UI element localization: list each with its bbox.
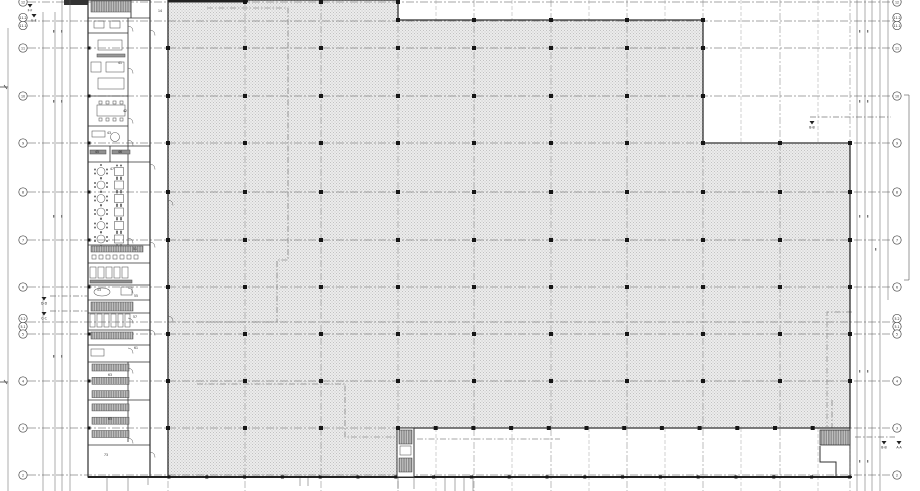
grid-bubble: 3 bbox=[893, 424, 901, 432]
grid-bubble: 11 bbox=[19, 44, 27, 52]
svg-text:11.1: 11.1 bbox=[893, 24, 900, 28]
grid-bubble: 9 bbox=[893, 139, 901, 147]
grid-bubble: 3 bbox=[19, 424, 27, 432]
plan-canvas: 121211.211.111.211.111111010998877665.25… bbox=[0, 0, 920, 491]
room-number: 45 bbox=[95, 150, 99, 154]
svg-text:9: 9 bbox=[896, 141, 898, 145]
svg-text:A-A: A-A bbox=[896, 446, 902, 450]
svg-text:7: 7 bbox=[22, 238, 24, 242]
svg-text:5: 5 bbox=[896, 332, 898, 336]
grid-bubble: 9 bbox=[19, 139, 27, 147]
grid-bubble: 2 bbox=[893, 471, 901, 479]
grid-bubble: 11 bbox=[893, 44, 901, 52]
svg-text:3: 3 bbox=[22, 426, 24, 430]
room-number: 47 bbox=[110, 167, 114, 171]
svg-text:11.1: 11.1 bbox=[19, 24, 26, 28]
grid-bubble: 6 bbox=[893, 283, 901, 291]
grid-bubble: 4 bbox=[19, 377, 27, 385]
svg-text:9: 9 bbox=[22, 141, 24, 145]
room-number: 53 bbox=[97, 288, 101, 292]
grid-bubble: 10 bbox=[19, 92, 27, 100]
room-number: 57 bbox=[133, 315, 137, 319]
svg-text:4: 4 bbox=[22, 379, 24, 383]
svg-text:11.2: 11.2 bbox=[19, 16, 26, 20]
grid-bubble: 5 bbox=[893, 330, 901, 338]
svg-text:10: 10 bbox=[895, 94, 899, 98]
svg-text:D-D: D-D bbox=[41, 302, 48, 306]
area-fills bbox=[0, 0, 920, 491]
svg-text:12: 12 bbox=[21, 0, 25, 4]
room-number: 42 bbox=[123, 109, 127, 113]
svg-text:5: 5 bbox=[22, 332, 24, 336]
grid-bubble: 12 bbox=[19, 0, 27, 6]
grid-bubble: 5.2 bbox=[893, 314, 901, 322]
svg-text:F-F: F-F bbox=[28, 9, 33, 13]
svg-text:11.2: 11.2 bbox=[893, 16, 900, 20]
grid-bubble: 7 bbox=[893, 236, 901, 244]
room-number: 46 bbox=[118, 150, 122, 154]
svg-text:E-E: E-E bbox=[31, 19, 36, 23]
grid-bubble: 12 bbox=[893, 0, 901, 6]
svg-text:5.1: 5.1 bbox=[894, 325, 899, 329]
svg-text:8: 8 bbox=[896, 190, 898, 194]
svg-text:2: 2 bbox=[896, 473, 898, 477]
grid-bubble: 5.1 bbox=[893, 322, 901, 330]
svg-text:7: 7 bbox=[896, 238, 898, 242]
svg-text:B-B: B-B bbox=[809, 126, 814, 130]
svg-text:C-C: C-C bbox=[41, 317, 47, 321]
room-number: 41 bbox=[118, 61, 122, 65]
svg-text:2: 2 bbox=[22, 473, 24, 477]
room-number: 14 bbox=[158, 9, 162, 13]
svg-text:6: 6 bbox=[22, 285, 24, 289]
grid-bubble: 8 bbox=[19, 188, 27, 196]
grid-bubble: 5 bbox=[19, 330, 27, 338]
svg-text:4: 4 bbox=[896, 379, 898, 383]
room-number: 61 bbox=[134, 346, 138, 350]
grid-bubble: 4 bbox=[893, 377, 901, 385]
room-number: 63 bbox=[108, 373, 112, 377]
room-number: 73 bbox=[104, 453, 108, 457]
grid-bubble: 11.1 bbox=[19, 21, 27, 29]
grid-bubble: 8 bbox=[893, 188, 901, 196]
svg-text:10: 10 bbox=[21, 94, 25, 98]
grid-bubble: 11.2 bbox=[893, 13, 901, 21]
svg-text:11: 11 bbox=[895, 46, 899, 50]
room-number: 43 bbox=[107, 131, 111, 135]
svg-text:8: 8 bbox=[22, 190, 24, 194]
room-number: 55 bbox=[134, 294, 138, 298]
svg-text:5.2: 5.2 bbox=[20, 317, 25, 321]
svg-text:5.1: 5.1 bbox=[20, 325, 25, 329]
svg-text:3: 3 bbox=[896, 426, 898, 430]
grid-bubble: 10 bbox=[893, 92, 901, 100]
grid-bubble: 5.1 bbox=[19, 322, 27, 330]
svg-text:12: 12 bbox=[895, 0, 899, 4]
grid-bubble: 6 bbox=[19, 283, 27, 291]
grid-bubble: 11.1 bbox=[893, 21, 901, 29]
svg-text:6: 6 bbox=[896, 285, 898, 289]
grid-bubble: 5.2 bbox=[19, 314, 27, 322]
grid-bubble: 7 bbox=[19, 236, 27, 244]
svg-text:5.2: 5.2 bbox=[894, 317, 899, 321]
grid-bubble: 2 bbox=[19, 471, 27, 479]
floor-plan-sheet: 121211.211.111.211.111111010998877665.25… bbox=[0, 0, 920, 491]
room-number: 51 bbox=[133, 247, 137, 251]
room-number: 65 bbox=[108, 417, 112, 421]
svg-text:B-B: B-B bbox=[881, 446, 886, 450]
grid-bubble: 11.2 bbox=[19, 13, 27, 21]
svg-text:11: 11 bbox=[21, 46, 25, 50]
stair-shaft-east bbox=[820, 430, 850, 445]
